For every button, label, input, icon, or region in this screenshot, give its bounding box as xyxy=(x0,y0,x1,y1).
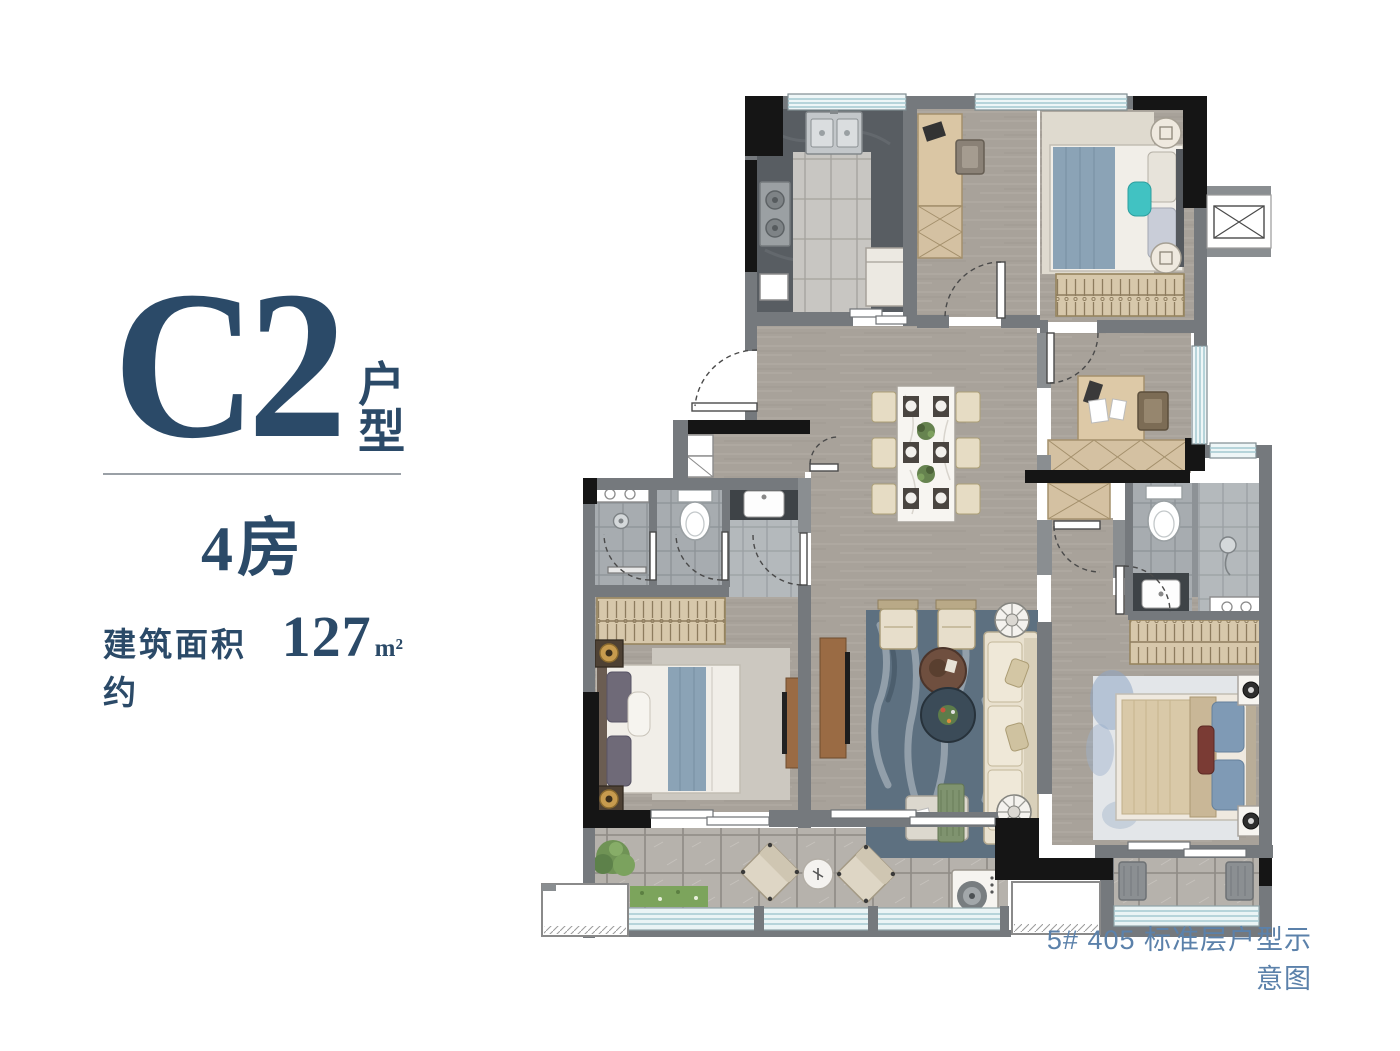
window-top-kitchen xyxy=(788,94,906,110)
bedroom-2 xyxy=(1042,112,1184,316)
window-top-bedroom2 xyxy=(975,94,1127,110)
dining-area xyxy=(872,386,980,522)
ac-unit-box xyxy=(1207,186,1271,257)
floorplan-svg xyxy=(0,0,1400,1051)
window-right-study xyxy=(1192,346,1207,444)
balcony-rail xyxy=(586,906,1009,932)
plan-caption: 5# 405 标准层户型示意图 xyxy=(1022,918,1312,996)
floorplan-page: C2 户型 4房 建筑面积约 127 m² xyxy=(0,0,1400,1051)
window-bathroom2 xyxy=(1210,443,1256,458)
ac-platform-left xyxy=(542,884,628,936)
entry-door xyxy=(692,350,757,411)
